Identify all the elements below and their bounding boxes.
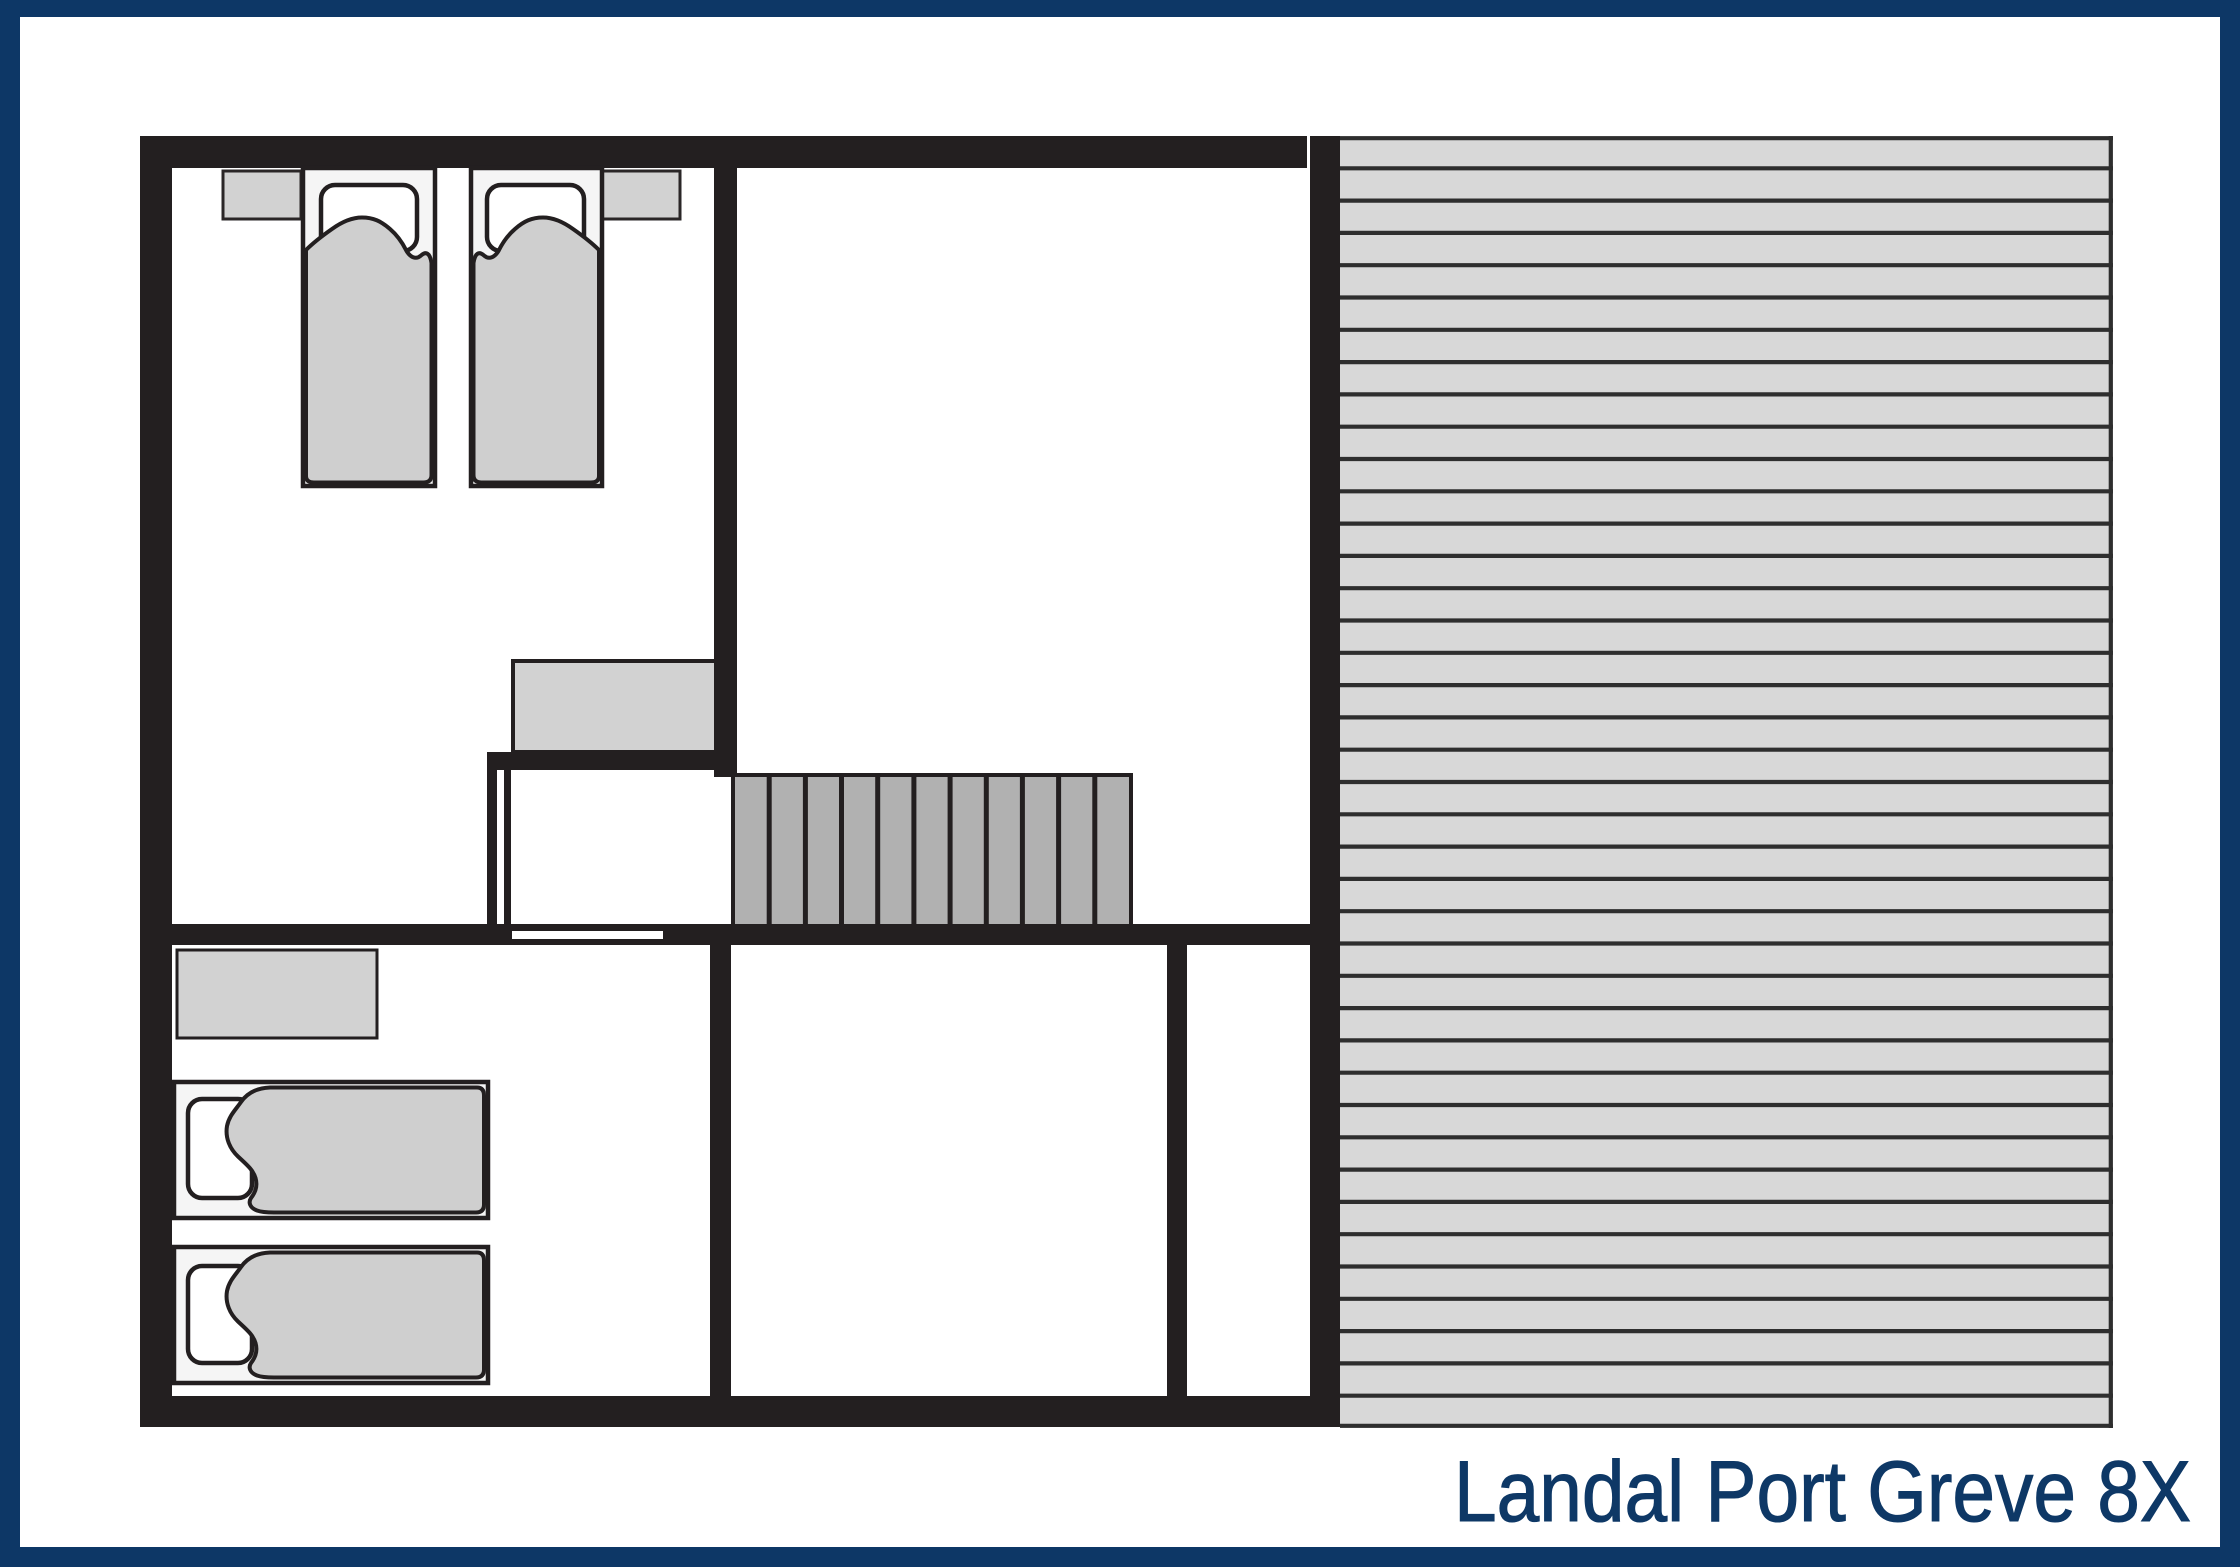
svg-text:Landal Port Greve 8X: Landal Port Greve 8X <box>1454 1444 2191 1540</box>
